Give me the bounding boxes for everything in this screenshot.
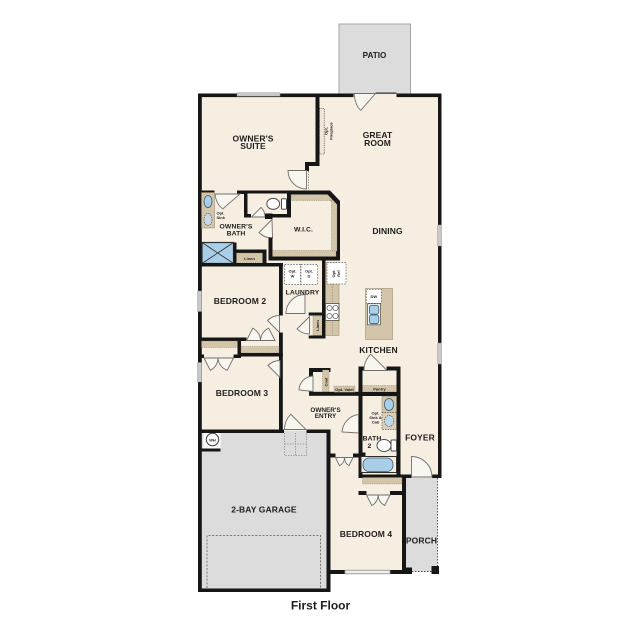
svg-text:Coat: Coat (324, 377, 329, 387)
svg-text:WH: WH (209, 437, 216, 442)
svg-text:DINING: DINING (372, 226, 403, 236)
svg-text:W: W (291, 274, 295, 279)
svg-text:2: 2 (368, 443, 372, 450)
svg-text:First Floor: First Floor (291, 599, 351, 613)
svg-text:BEDROOM 4: BEDROOM 4 (340, 529, 393, 539)
svg-text:Linen: Linen (315, 320, 320, 331)
svg-text:BEDROOM 2: BEDROOM 2 (214, 296, 267, 306)
svg-text:W.I.C.: W.I.C. (294, 227, 313, 234)
svg-text:DW: DW (370, 294, 377, 299)
svg-text:Cab: Cab (372, 420, 380, 425)
svg-text:Pantry: Pantry (373, 387, 386, 392)
svg-text:Sink: Sink (217, 215, 226, 220)
svg-text:KITCHEN: KITCHEN (359, 345, 397, 355)
svg-text:BEDROOM 3: BEDROOM 3 (216, 388, 269, 398)
svg-text:Opt. Valet: Opt. Valet (335, 387, 354, 392)
svg-text:FOYER: FOYER (405, 433, 435, 443)
svg-text:PATIO: PATIO (363, 51, 387, 60)
svg-text:SUITE: SUITE (240, 141, 266, 151)
svg-text:D: D (308, 274, 311, 279)
svg-text:Fireplace: Fireplace (329, 121, 334, 139)
svg-text:ROOM: ROOM (364, 138, 391, 148)
svg-text:2-BAY GARAGE: 2-BAY GARAGE (231, 505, 297, 515)
svg-text:OWNER'S: OWNER'S (220, 223, 253, 230)
svg-text:ENTRY: ENTRY (315, 413, 337, 420)
svg-text:BATH: BATH (227, 230, 246, 237)
svg-text:Linen: Linen (244, 256, 255, 261)
svg-text:Ref: Ref (336, 270, 341, 277)
svg-text:PORCH: PORCH (406, 536, 437, 546)
